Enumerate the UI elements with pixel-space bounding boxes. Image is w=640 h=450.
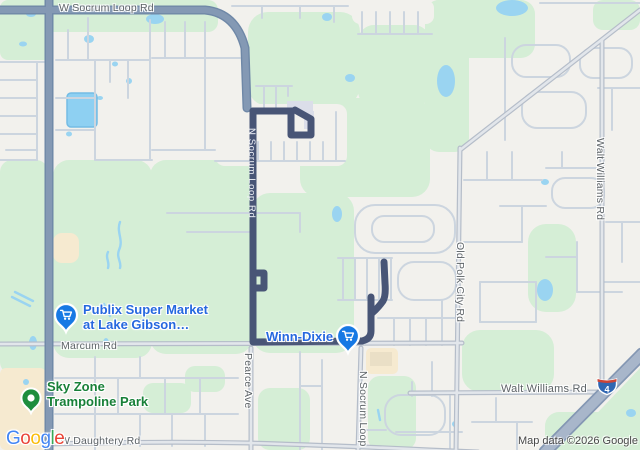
shield-number: 4 xyxy=(604,385,609,395)
map-canvas[interactable]: 4 xyxy=(0,0,640,450)
google-maps-view[interactable]: 4 W Socrum Loop Rd N Socrum Loop Rd Marc… xyxy=(0,0,640,450)
pin-dot-icon xyxy=(27,394,34,401)
